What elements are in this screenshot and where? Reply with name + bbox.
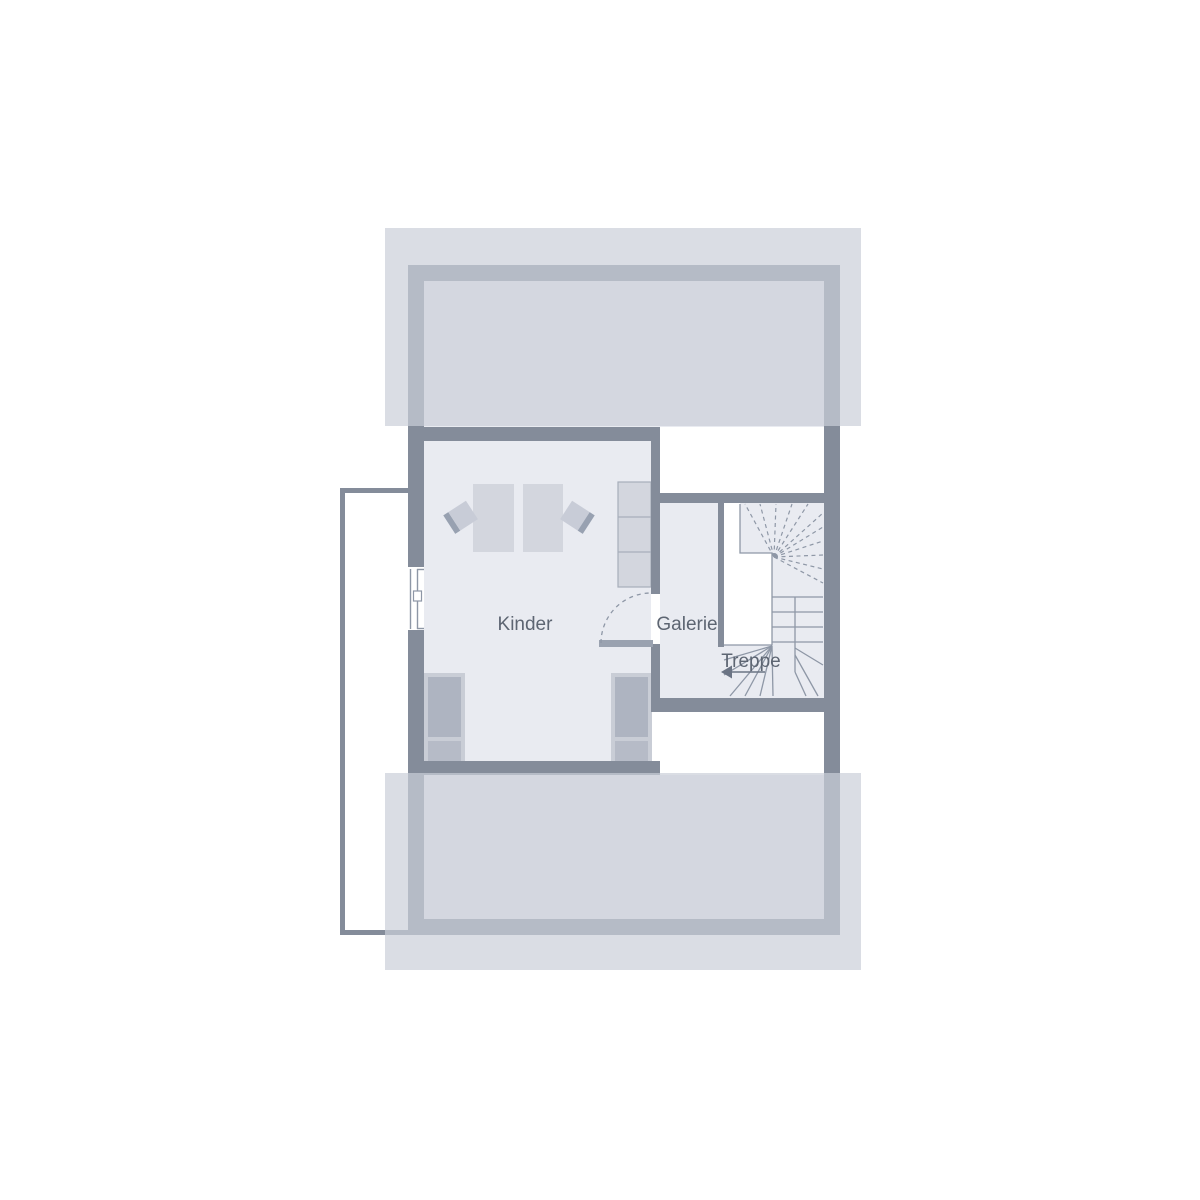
bed [611, 673, 652, 765]
desk [523, 484, 563, 552]
window [408, 567, 424, 630]
bed-foot [428, 741, 461, 762]
galerie-label: Galerie [656, 614, 717, 635]
bed-mattress [428, 677, 461, 737]
floor-plan-page: Kinder Galerie Treppe [0, 0, 1200, 1200]
kinder-label: Kinder [498, 614, 554, 635]
bed [424, 673, 465, 765]
door-leaf [599, 640, 653, 647]
roof-overlay-top [385, 228, 861, 426]
wall-kinder-bottom [408, 761, 660, 775]
wall-stair-divider [718, 503, 724, 647]
bed-mattress [615, 677, 648, 737]
desk [473, 484, 514, 552]
wardrobe-body [618, 482, 651, 587]
wall-galerie-bottom [651, 698, 840, 712]
wall-kinder-galerie-upper [651, 427, 660, 594]
treppe-label: Treppe [721, 651, 781, 672]
balcony-border-top [340, 488, 408, 493]
bed-foot [615, 741, 648, 762]
wall-kinder-top [408, 427, 660, 441]
balcony-border-left [340, 488, 345, 935]
roof-overlay-bottom [385, 773, 861, 970]
floor-plan: Kinder Galerie Treppe [0, 0, 1200, 1200]
window-handle [414, 591, 422, 601]
wardrobe [618, 482, 651, 587]
wall-galerie-top [651, 493, 840, 503]
